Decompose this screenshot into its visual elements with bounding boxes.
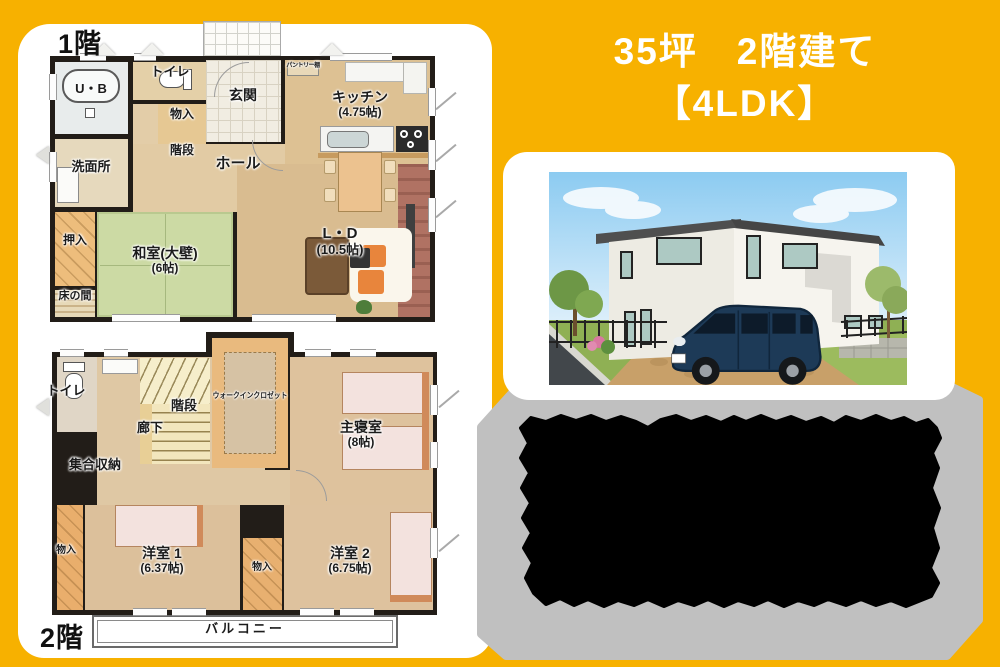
room-label: ホール <box>215 156 260 173</box>
window-marker <box>430 442 438 468</box>
room-label-text: 和室(大壁) <box>132 245 197 261</box>
room-label-text: 主寝室 <box>340 419 382 435</box>
room-size-text: (6.37帖) <box>140 562 183 575</box>
window-marker <box>428 198 436 232</box>
room-label: バルコニー <box>205 622 285 637</box>
room-label: 床の間 <box>59 290 92 302</box>
chair-icon <box>324 188 336 202</box>
room-closet-mid <box>243 538 282 610</box>
window-marker <box>428 88 436 116</box>
room-label-text: L・D <box>323 225 358 242</box>
window-marker <box>49 74 57 100</box>
room-label: U・B <box>75 82 107 97</box>
bed-icon <box>115 505 203 547</box>
window-arrow-icon <box>36 146 49 164</box>
stove-icon <box>396 126 428 152</box>
room-oshiire <box>55 212 95 286</box>
counter-icon <box>102 359 138 374</box>
window-marker <box>49 152 57 182</box>
room-label: 和室(大壁) (6帖) <box>132 246 197 275</box>
chair-icon <box>324 160 336 174</box>
bath-drain-icon <box>85 108 95 118</box>
room-label: パントリー棚 <box>286 63 319 70</box>
floor1-label: 1階 <box>58 22 102 61</box>
room-label: 主寝室 (8帖) <box>340 420 382 449</box>
room-label: 階段 <box>170 144 194 157</box>
flyer-title: 35坪 2階建て 【4LDK】 <box>500 26 990 130</box>
room-bath <box>55 62 128 134</box>
bed-icon <box>390 512 432 602</box>
room-label-text: 洋室 2 <box>330 545 370 561</box>
dining-table <box>338 152 382 212</box>
bed-headboard <box>390 595 432 602</box>
kitchen-cabinet <box>345 62 407 82</box>
room-label: 洗面所 <box>71 160 110 175</box>
window-marker <box>430 528 438 558</box>
bed-headboard <box>422 372 429 470</box>
chair-icon <box>384 188 396 202</box>
flyer-background: 1階 <box>0 0 1000 667</box>
room-label: 集合収納 <box>69 458 121 473</box>
chair-icon <box>384 160 396 174</box>
room-label: トイレ <box>150 65 189 80</box>
room-label: 廊下 <box>137 421 163 436</box>
window-marker <box>104 349 128 357</box>
entrance-porch <box>203 21 281 61</box>
room-size-text: (6帖) <box>132 262 197 275</box>
toilet-tank-icon <box>63 362 85 372</box>
bed-headboard <box>197 505 203 547</box>
window-marker <box>350 349 376 357</box>
room-label: 物入 <box>252 562 272 573</box>
room-label: ウォークインクロゼット <box>213 392 288 401</box>
window-arrow-icon <box>36 398 49 416</box>
room-wic <box>212 338 288 468</box>
room-label: 押入 <box>63 234 87 247</box>
plant-icon <box>356 300 372 314</box>
info-panel <box>476 378 986 663</box>
room-label: トイレ <box>46 384 85 399</box>
window-marker <box>112 314 180 322</box>
window-marker <box>133 608 167 616</box>
room-label: 物入 <box>56 545 76 556</box>
window-marker <box>252 314 336 322</box>
room-size-text: (10.5帖) <box>317 243 364 258</box>
room-label: L・D (10.5帖) <box>317 226 364 257</box>
room-label-text: キッチン <box>332 89 388 105</box>
room-label: 洋室 1 (6.37帖) <box>140 546 183 575</box>
room-label: 玄関 <box>229 88 257 104</box>
room-label-text: 洋室 1 <box>142 545 182 561</box>
refrigerator-icon <box>403 62 427 94</box>
house-rendering <box>549 172 907 385</box>
redaction-blob <box>521 416 940 606</box>
room-label: 洋室 2 (6.75帖) <box>328 546 371 575</box>
sink-icon <box>327 131 369 148</box>
room-size-text: (4.75帖) <box>332 106 388 119</box>
window-marker <box>300 608 334 616</box>
room-label: 階段 <box>171 399 197 414</box>
room-label: 物入 <box>170 108 194 121</box>
window-marker <box>60 349 84 357</box>
room-label: キッチン (4.75帖) <box>332 90 388 119</box>
window-marker <box>428 140 436 170</box>
window-marker <box>430 385 438 415</box>
vent-icon <box>140 43 164 55</box>
room-closet-left <box>57 505 83 610</box>
title-line1: 35坪 2階建て <box>500 26 990 78</box>
room-size-text: (6.75帖) <box>328 562 371 575</box>
title-line2: 【4LDK】 <box>500 78 990 130</box>
window-marker <box>340 608 374 616</box>
room-size-text: (8帖) <box>340 436 382 449</box>
floor-cushion <box>358 270 384 294</box>
floor2-label: 2階 <box>40 616 84 655</box>
window-marker <box>172 608 206 616</box>
window-marker <box>305 349 331 357</box>
kitchen-counter <box>320 126 394 152</box>
wic-floor <box>224 352 276 454</box>
bed-icon <box>342 372 428 414</box>
vent-icon <box>320 43 344 55</box>
